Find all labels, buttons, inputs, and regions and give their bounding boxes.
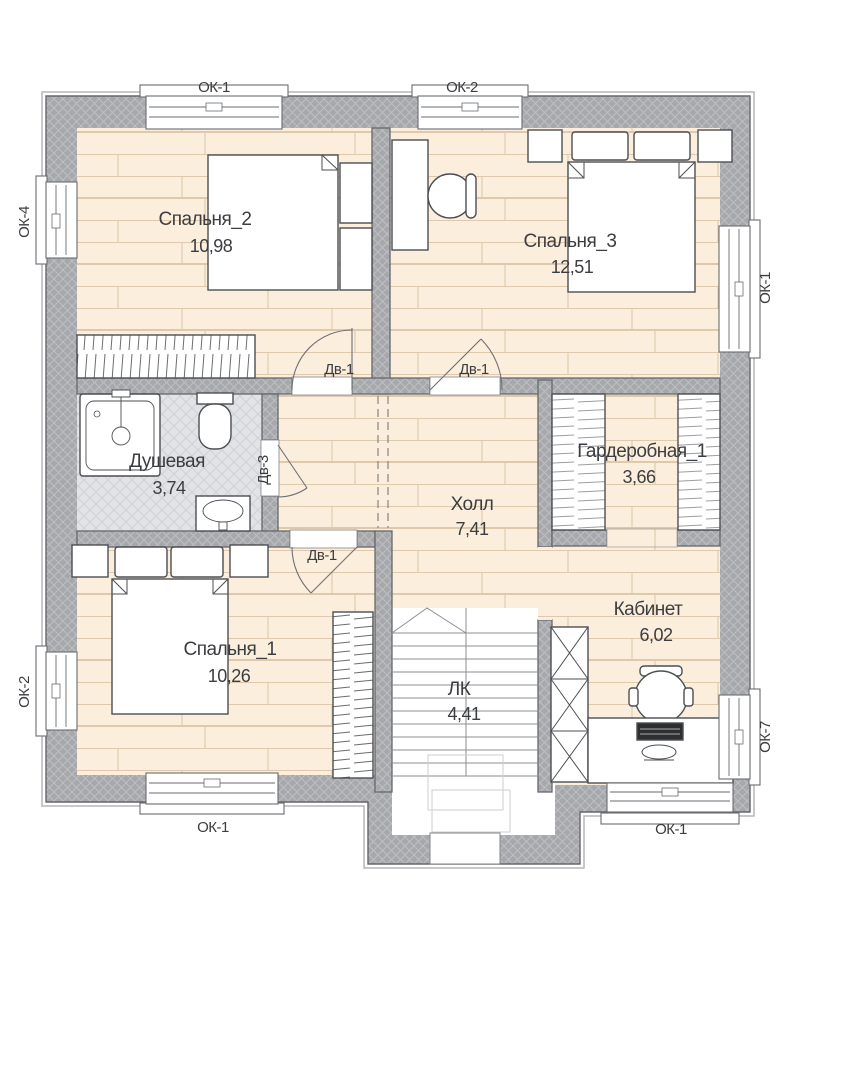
window-left-lower <box>36 646 77 736</box>
bed3-nightstand-left <box>528 130 562 162</box>
door-mark-bedroom1: Дв-1 <box>307 547 337 564</box>
wall-wardrobe-office-left <box>552 530 607 546</box>
window-mark-bottom-left: ОК-1 <box>197 819 229 836</box>
opening-wardrobe <box>607 529 677 547</box>
window-right-lower <box>719 689 760 785</box>
bed1-nightstand-left <box>72 545 108 577</box>
bed1-nightstand-right <box>230 545 268 577</box>
opening-bedroom1 <box>290 530 357 548</box>
office-desk <box>588 718 733 783</box>
bedroom1-name: Спальня_1 <box>184 639 277 660</box>
window-mark-bottom-right: ОК-1 <box>655 821 687 838</box>
shower-area: 3,74 <box>152 478 186 498</box>
bedroom2-area: 10,98 <box>190 236 233 256</box>
stair-bay-opening <box>430 833 500 864</box>
window-mark-left-upper: ОК-4 <box>16 206 33 238</box>
shower-name: Душевая <box>129 451 205 472</box>
desk-accessory <box>642 745 676 759</box>
office-shelving <box>551 627 588 782</box>
window-left-upper <box>36 176 77 264</box>
wardrobe-unit-left <box>552 394 605 530</box>
wall-bedroom1-stairs <box>375 531 392 792</box>
wall-bedroom2-shower <box>77 378 292 394</box>
stairs-area: 4,41 <box>447 704 481 724</box>
floor-plan-drawing: Спальня_2 10,98 Спальня_3 12,51 Душевая … <box>0 0 849 1080</box>
window-mark-left-lower: ОК-2 <box>16 676 33 708</box>
opening-bedroom2 <box>292 377 352 395</box>
bed3-pillow-right <box>634 132 690 160</box>
window-bottom-left <box>140 773 284 814</box>
wardrobe-name: Гардеробная_1 <box>577 441 707 462</box>
hall-name: Холл <box>451 494 494 515</box>
wall-hall-bedroom1-stub <box>357 531 375 547</box>
desk-bedroom3 <box>392 140 428 250</box>
bedroom1-wardrobe <box>333 612 373 778</box>
window-right-upper <box>719 220 760 358</box>
bedroom2-wardrobe <box>77 335 255 378</box>
window-bottom-right <box>601 783 739 824</box>
bedroom3-name: Спальня_3 <box>524 231 617 252</box>
wall-bedroom3-wardrobe <box>500 378 720 394</box>
bedroom1-area: 10,26 <box>208 666 251 686</box>
opening-office <box>538 547 552 620</box>
bed1-pillow-left <box>115 547 167 577</box>
wall-bedroom2-bedroom3 <box>372 128 390 394</box>
bed3-nightstand-right <box>698 130 732 162</box>
bed3-pillow-left <box>572 132 628 160</box>
window-mark-top-center: ОК-2 <box>446 79 478 96</box>
bed1-pillow-right <box>171 547 223 577</box>
window-mark-right-lower: ОК-7 <box>757 721 774 753</box>
wall-shower-hall-lower <box>262 496 278 533</box>
bed2-nightstand-2 <box>340 228 372 290</box>
door-mark-bedroom3: Дв-1 <box>459 361 489 378</box>
wardrobe-area: 3,66 <box>622 467 656 487</box>
door-mark-bedroom2: Дв-1 <box>324 361 354 378</box>
window-mark-right-upper: ОК-1 <box>757 272 774 304</box>
bedroom3-area: 12,51 <box>551 257 594 277</box>
wall-stairs-office <box>538 620 552 792</box>
stairs-name: ЛК <box>448 679 471 700</box>
keyboard <box>637 723 683 740</box>
wall-shower-hall-upper <box>262 394 278 440</box>
chair-bedroom3-back <box>466 174 476 218</box>
office-name: Кабинет <box>614 599 684 620</box>
bedroom2-name: Спальня_2 <box>159 209 252 230</box>
wardrobe-unit-right <box>678 394 720 530</box>
stair-bay-area <box>392 775 555 835</box>
window-mark-top-left: ОК-1 <box>198 79 230 96</box>
toilet <box>197 393 233 449</box>
office-area: 6,02 <box>639 625 673 645</box>
door-mark-shower: Дв-3 <box>255 455 272 485</box>
wall-mid-pillar <box>352 378 430 394</box>
sink <box>196 496 250 531</box>
floor-plan-page: Спальня_2 10,98 Спальня_3 12,51 Душевая … <box>0 0 849 1080</box>
wall-wardrobe-office-right <box>677 530 720 546</box>
wall-hall-wardrobe <box>538 380 552 547</box>
hall-area: 7,41 <box>455 519 489 539</box>
bed2-nightstand-1 <box>340 163 372 223</box>
